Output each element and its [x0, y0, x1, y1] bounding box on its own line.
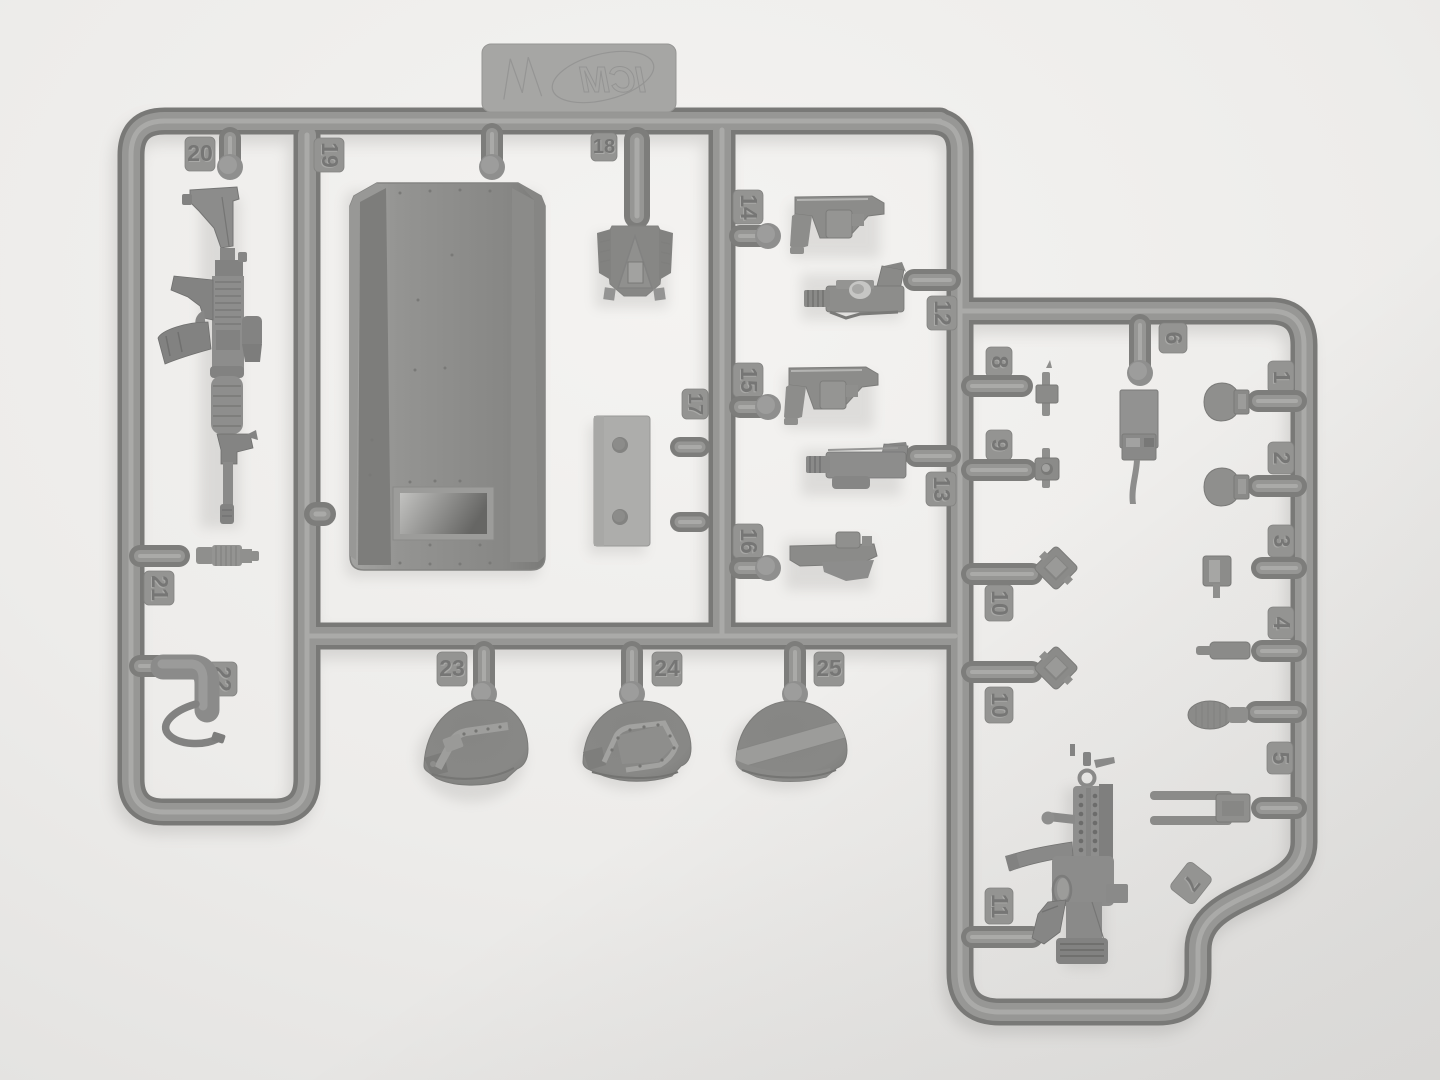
svg-text:23: 23 [439, 655, 465, 681]
svg-text:10: 10 [987, 590, 1013, 616]
svg-text:15: 15 [736, 367, 762, 393]
svg-text:12: 12 [930, 300, 956, 326]
svg-text:9: 9 [987, 439, 1013, 452]
svg-text:16: 16 [736, 528, 762, 554]
svg-text:3: 3 [1269, 535, 1295, 548]
svg-text:14: 14 [736, 194, 762, 220]
svg-text:21: 21 [147, 575, 173, 601]
svg-text:13: 13 [929, 476, 955, 502]
svg-text:4: 4 [1269, 617, 1295, 630]
svg-text:ICM: ICM [579, 59, 646, 100]
svg-text:2: 2 [1269, 452, 1295, 465]
svg-text:6: 6 [1161, 332, 1187, 345]
svg-text:20: 20 [187, 140, 213, 166]
svg-text:18: 18 [593, 136, 615, 158]
svg-text:17: 17 [684, 393, 706, 415]
svg-text:8: 8 [987, 356, 1013, 369]
svg-text:25: 25 [816, 655, 842, 681]
svg-text:1: 1 [1269, 371, 1295, 384]
svg-text:11: 11 [987, 894, 1013, 919]
svg-text:19: 19 [317, 142, 343, 168]
svg-text:10: 10 [987, 692, 1013, 718]
svg-text:24: 24 [654, 655, 680, 681]
svg-text:5: 5 [1268, 752, 1294, 765]
